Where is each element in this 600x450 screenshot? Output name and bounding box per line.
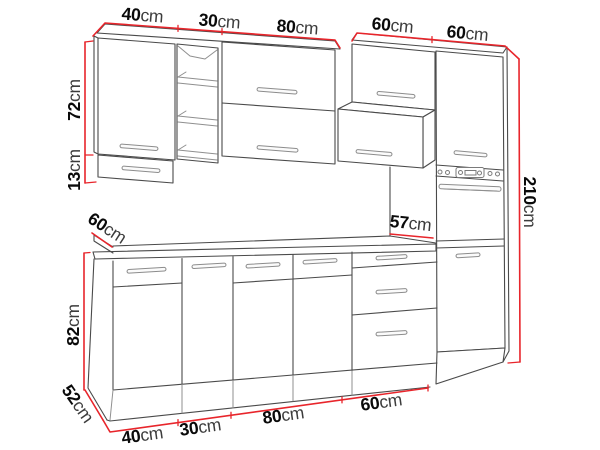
door-handle — [456, 253, 480, 258]
door-handle — [192, 263, 226, 269]
dim-bottom-40: 40cm — [120, 422, 164, 448]
dim-counter-depth-60: 60cm — [84, 208, 130, 247]
dim-top-60a: 60cm — [371, 13, 414, 37]
diagram-canvas: 40cm 30cm 80cm 60cm 60cm 72cm 13cm 60cm … — [0, 0, 600, 450]
dim-bottom-30: 30cm — [178, 414, 222, 440]
dim-top-30: 30cm — [198, 9, 241, 32]
base-left-side — [88, 259, 107, 420]
dim-bottom-60: 60cm — [359, 389, 403, 415]
dim-wall-height-72: 72cm — [64, 79, 84, 121]
dimension-line-total-height — [519, 59, 520, 362]
oven-knob-icon — [438, 170, 442, 174]
dim-top-60b: 60cm — [446, 21, 489, 45]
tall-cabinet-plinth — [436, 348, 505, 384]
door-handle — [246, 262, 280, 268]
tall-cabinet-front — [436, 51, 505, 352]
dim-top-80: 80cm — [276, 15, 319, 38]
base-door-bottom-line — [113, 363, 437, 390]
dimension-ticks-base-height — [84, 253, 90, 254]
open-shelf-unit-30 — [177, 44, 218, 163]
oven-knob-icon — [478, 171, 482, 175]
dim-total-height-210: 210cm — [520, 176, 540, 227]
oven-knob-icon — [488, 172, 492, 176]
dimension-tick-total-height — [508, 362, 520, 363]
dim-base-height-82: 82cm — [63, 304, 83, 346]
countertop-back-edge — [113, 236, 436, 246]
dim-bottom-80: 80cm — [261, 402, 305, 428]
door-handle — [303, 258, 337, 264]
dim-splashback-57: 57cm — [389, 211, 432, 235]
oven-display — [465, 171, 476, 176]
oven-knob-icon — [459, 171, 463, 175]
drawer-handle — [376, 255, 407, 260]
drawer-handle — [376, 331, 407, 336]
dim-plinth-depth-52: 52cm — [58, 381, 98, 427]
wall-cabinet-80 — [222, 42, 335, 164]
wall-cabinet-40-side — [94, 36, 98, 154]
kitchen-dimension-diagram: 40cm 30cm 80cm 60cm 60cm 72cm 13cm 60cm … — [0, 0, 600, 450]
tall-oven-cabinet — [436, 47, 509, 384]
oven-knob-icon — [496, 172, 500, 176]
door-handle — [127, 267, 166, 273]
wall-cabinet-40 — [98, 38, 175, 160]
dim-wall-extension-13: 13cm — [64, 149, 84, 191]
dim-top-40: 40cm — [121, 3, 164, 26]
drawer-unit-splits — [352, 262, 437, 315]
oven-knob-icon — [446, 171, 450, 175]
drawer-handle — [376, 289, 407, 294]
wall-cabinet-60-lower-side — [423, 110, 435, 168]
base-section-dividers — [113, 252, 352, 390]
wall-cabinet-60-lower — [338, 109, 423, 168]
wall-cabinet-60-upper — [352, 44, 435, 110]
base-cabinets — [88, 167, 437, 421]
